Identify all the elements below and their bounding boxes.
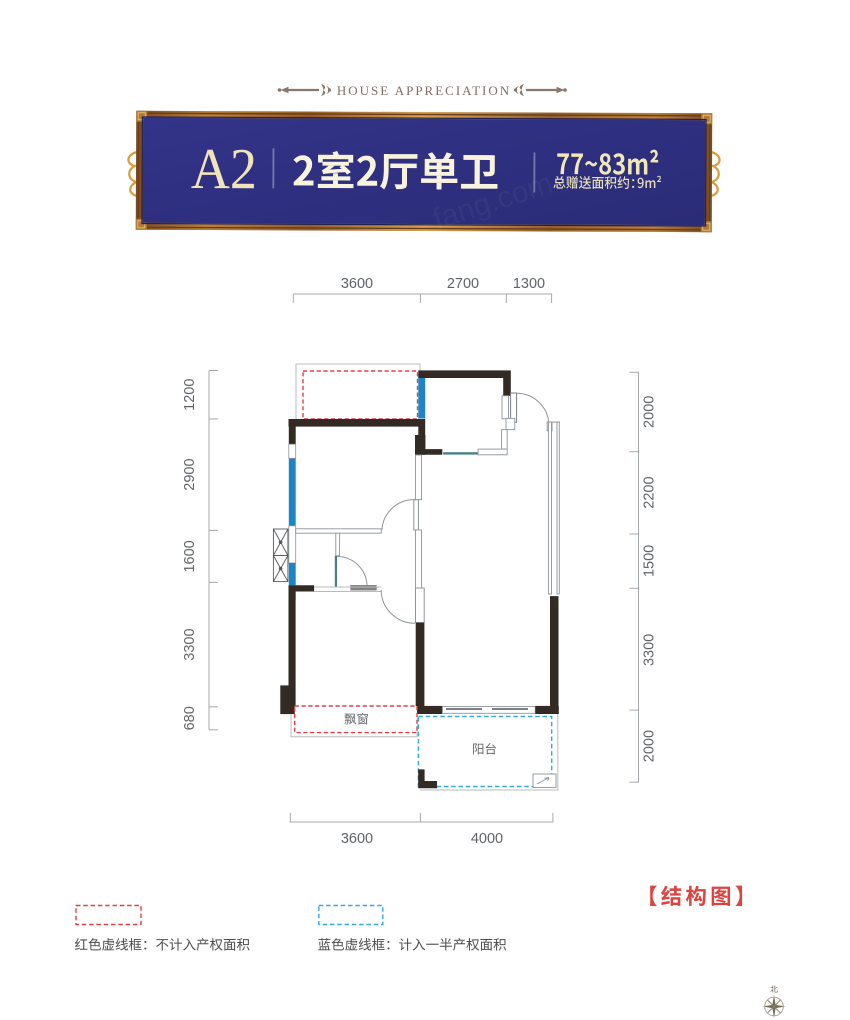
- svg-text:2000: 2000: [642, 730, 658, 762]
- svg-text:2000: 2000: [642, 396, 658, 428]
- svg-text:680: 680: [182, 706, 198, 730]
- svg-text:2900: 2900: [182, 458, 198, 490]
- svg-text:1600: 1600: [182, 540, 198, 572]
- svg-text:HOUSE APPRECIATION: HOUSE APPRECIATION: [337, 83, 511, 98]
- svg-text:A2: A2: [191, 136, 257, 201]
- svg-text:1500: 1500: [642, 545, 658, 577]
- svg-text:3600: 3600: [341, 831, 373, 847]
- svg-text:2200: 2200: [642, 476, 658, 508]
- svg-text:1200: 1200: [182, 379, 198, 411]
- svg-text:2700: 2700: [447, 276, 479, 292]
- svg-text:4000: 4000: [471, 831, 503, 847]
- svg-text:1300: 1300: [513, 276, 545, 292]
- svg-text:3300: 3300: [182, 628, 198, 660]
- svg-text:3600: 3600: [341, 276, 373, 292]
- svg-text:3300: 3300: [642, 634, 658, 666]
